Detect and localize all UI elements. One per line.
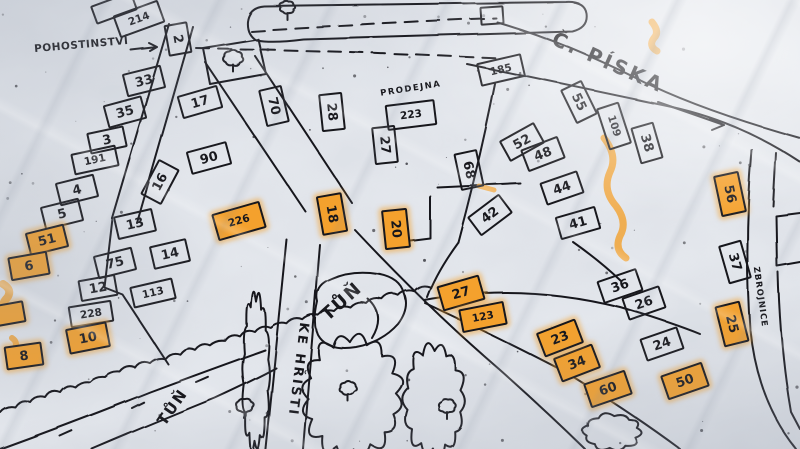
house-number: 50 [674,371,696,391]
house-123-51: 123 [458,301,508,333]
house-number: 223 [399,108,422,123]
house-20-29: 20 [381,208,411,250]
house-28-25: 28 [318,92,346,132]
house-number: 2 [170,33,186,45]
house-42-31: 42 [467,193,513,236]
house-unlabeled-52 [479,5,504,26]
house-number: 109 [605,114,623,139]
house-90-15: 90 [186,141,233,175]
house-number: 191 [83,152,107,168]
house-17-13: 17 [177,85,224,120]
house-number: 6 [23,258,35,274]
house-number: 55 [568,91,589,114]
house-number: 226 [227,212,251,230]
house-14-18: 14 [149,238,191,270]
house-60-47: 60 [583,370,633,409]
house-number: 36 [609,276,631,296]
house-number: 27 [450,283,472,302]
house-6-10: 6 [7,251,51,282]
house-number: 113 [141,285,165,302]
house-24-39: 24 [639,326,685,362]
house-number: 35 [114,102,135,121]
house-223-27: 223 [385,99,438,131]
house-8-12: 8 [4,341,45,370]
house-113-21: 113 [129,277,177,308]
house-number: 13 [124,215,145,234]
house-18-28: 18 [316,192,349,236]
house-51-9: 51 [25,224,70,257]
house-191-6: 191 [70,144,120,175]
house-number: 17 [189,92,211,111]
hand-drawn-village-map-photo: 2142333531914551681770901613147512113228… [0,0,800,449]
house-25-45: 25 [714,300,749,347]
house-68-30: 68 [453,149,484,191]
house-number: 20 [388,219,405,239]
house-226-24: 226 [211,201,267,242]
house-number: 14 [159,245,180,264]
house-number: 56 [721,184,739,205]
house-27-26: 27 [371,125,399,165]
house-number: 25 [723,313,742,334]
house-number: 23 [549,328,571,348]
house-number: 41 [567,213,589,232]
house-38-42: 38 [630,121,664,164]
house-number: 37 [725,251,744,273]
house-number: 48 [532,144,554,164]
house-number: 68 [460,160,478,181]
house-number: 26 [633,293,655,313]
house-number: 8 [18,348,29,364]
house-number: 33 [133,72,154,91]
house-number: 10 [78,329,99,347]
house-number: 228 [79,306,103,321]
house-number: 60 [597,379,619,399]
house-number: 90 [198,148,219,167]
house-number: 42 [478,204,501,227]
house-number: 70 [265,95,284,116]
house-number: 123 [471,309,495,325]
house-35-4: 35 [103,95,148,129]
house-number: 38 [637,132,656,154]
house-50-46: 50 [660,362,710,401]
house-number: 51 [36,231,57,250]
house-12-20: 12 [77,274,118,302]
house-55-40: 55 [560,80,598,125]
house-number: 24 [651,334,673,354]
house-number: 27 [377,135,394,155]
house-number: 5 [56,206,68,223]
house-number: 75 [104,254,125,273]
house-41-36: 41 [555,206,602,241]
house-185-32: 185 [476,53,526,87]
house-number: 18 [323,204,341,224]
house-44-35: 44 [539,170,585,206]
house-2-2: 2 [163,21,192,57]
house-109-41: 109 [596,101,632,150]
house-33-3: 33 [122,65,167,98]
house-13-17: 13 [113,208,157,240]
house-37-44: 37 [718,239,752,284]
house-unlabeled-11 [0,300,27,328]
house-plots-layer: 2142333531914551681770901613147512113228… [0,0,800,449]
house-number: 16 [149,170,171,193]
house-number: 34 [566,353,588,373]
house-70-14: 70 [258,85,290,127]
house-56-43: 56 [713,171,747,217]
house-number: 44 [551,178,573,198]
house-number: 12 [88,279,108,297]
house-number: 28 [324,102,341,122]
house-16-16: 16 [140,159,180,206]
house-number: 214 [127,10,152,29]
house-number: 4 [71,182,83,199]
house-number: 185 [489,62,513,79]
